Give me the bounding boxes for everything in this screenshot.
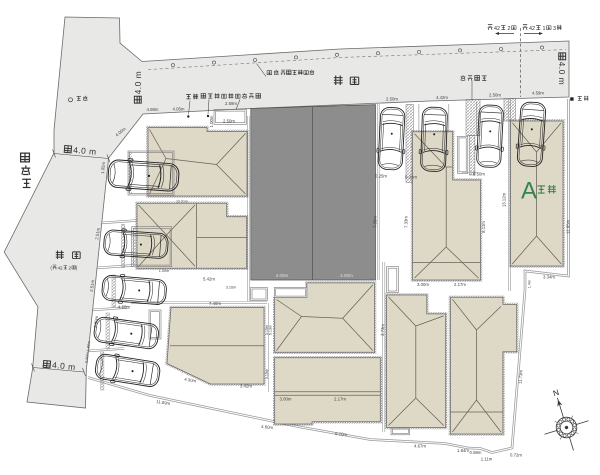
svg-text:4.60m: 4.60m xyxy=(118,305,130,310)
svg-text:2.17m: 2.17m xyxy=(334,397,346,402)
svg-text:2.50m: 2.50m xyxy=(489,93,501,98)
svg-text:42: 42 xyxy=(58,265,64,270)
svg-text:0.25m: 0.25m xyxy=(375,174,387,179)
svg-text:3.34m: 3.34m xyxy=(543,275,555,280)
svg-text:3.16m: 3.16m xyxy=(226,286,237,290)
svg-text:1: 1 xyxy=(543,26,546,32)
svg-text:42: 42 xyxy=(529,26,535,32)
svg-text:4.00m: 4.00m xyxy=(340,273,353,278)
svg-text:3.42m: 3.42m xyxy=(240,384,252,389)
svg-text:4.0 m: 4.0 m xyxy=(133,71,143,95)
svg-text:7.40m: 7.40m xyxy=(209,301,221,306)
svg-text:2.50m: 2.50m xyxy=(223,119,235,124)
svg-text:3: 3 xyxy=(553,26,556,32)
svg-text:2: 2 xyxy=(69,265,72,270)
svg-text:2.17m: 2.17m xyxy=(454,282,466,287)
svg-text:5.13m: 5.13m xyxy=(269,325,273,336)
svg-text:3.15m: 3.15m xyxy=(265,369,269,380)
svg-text:5.42m: 5.42m xyxy=(203,277,215,282)
svg-text:A: A xyxy=(521,178,537,205)
svg-text:10.01m: 10.01m xyxy=(176,200,188,204)
svg-text:11.73m: 11.73m xyxy=(518,369,524,384)
svg-text:0.72m: 0.72m xyxy=(510,453,522,458)
svg-text:4.00m: 4.00m xyxy=(276,273,289,278)
svg-text:12.85m: 12.85m xyxy=(566,219,571,234)
svg-text:2.59m: 2.59m xyxy=(225,101,237,106)
svg-text:2: 2 xyxy=(508,26,511,32)
svg-text:7.35m: 7.35m xyxy=(373,216,378,228)
svg-text:42: 42 xyxy=(494,26,500,32)
svg-text:1.00m: 1.00m xyxy=(159,269,170,273)
svg-text:3.73m: 3.73m xyxy=(380,323,385,336)
svg-text:1.00m: 1.00m xyxy=(209,115,214,127)
svg-text:8.11m: 8.11m xyxy=(481,221,486,233)
svg-text:4.67m: 4.67m xyxy=(414,444,426,449)
svg-text:3.15m: 3.15m xyxy=(265,325,269,336)
svg-text:3.00m: 3.00m xyxy=(417,282,429,287)
svg-text:4.98m: 4.98m xyxy=(147,107,159,112)
svg-text:0.98m: 0.98m xyxy=(470,450,482,455)
svg-text:4.59m: 4.59m xyxy=(532,91,544,96)
svg-text:1.4m: 1.4m xyxy=(528,280,532,288)
svg-text:1.84m: 1.84m xyxy=(457,448,469,453)
svg-text:0.50m: 0.50m xyxy=(473,172,485,177)
svg-text:4.05m: 4.05m xyxy=(173,107,185,112)
svg-text:4.0 m: 4.0 m xyxy=(73,145,97,157)
svg-text:13.12m: 13.12m xyxy=(502,192,507,207)
svg-text:3.00m: 3.00m xyxy=(280,397,292,402)
svg-text:1.11m: 1.11m xyxy=(481,457,493,462)
svg-text:4.42m: 4.42m xyxy=(436,95,448,100)
svg-text:7.33m: 7.33m xyxy=(404,216,409,228)
svg-text:4.0 m: 4.0 m xyxy=(557,62,567,86)
svg-text:2.50m: 2.50m xyxy=(386,97,398,102)
svg-text:0.23m: 0.23m xyxy=(405,175,417,180)
